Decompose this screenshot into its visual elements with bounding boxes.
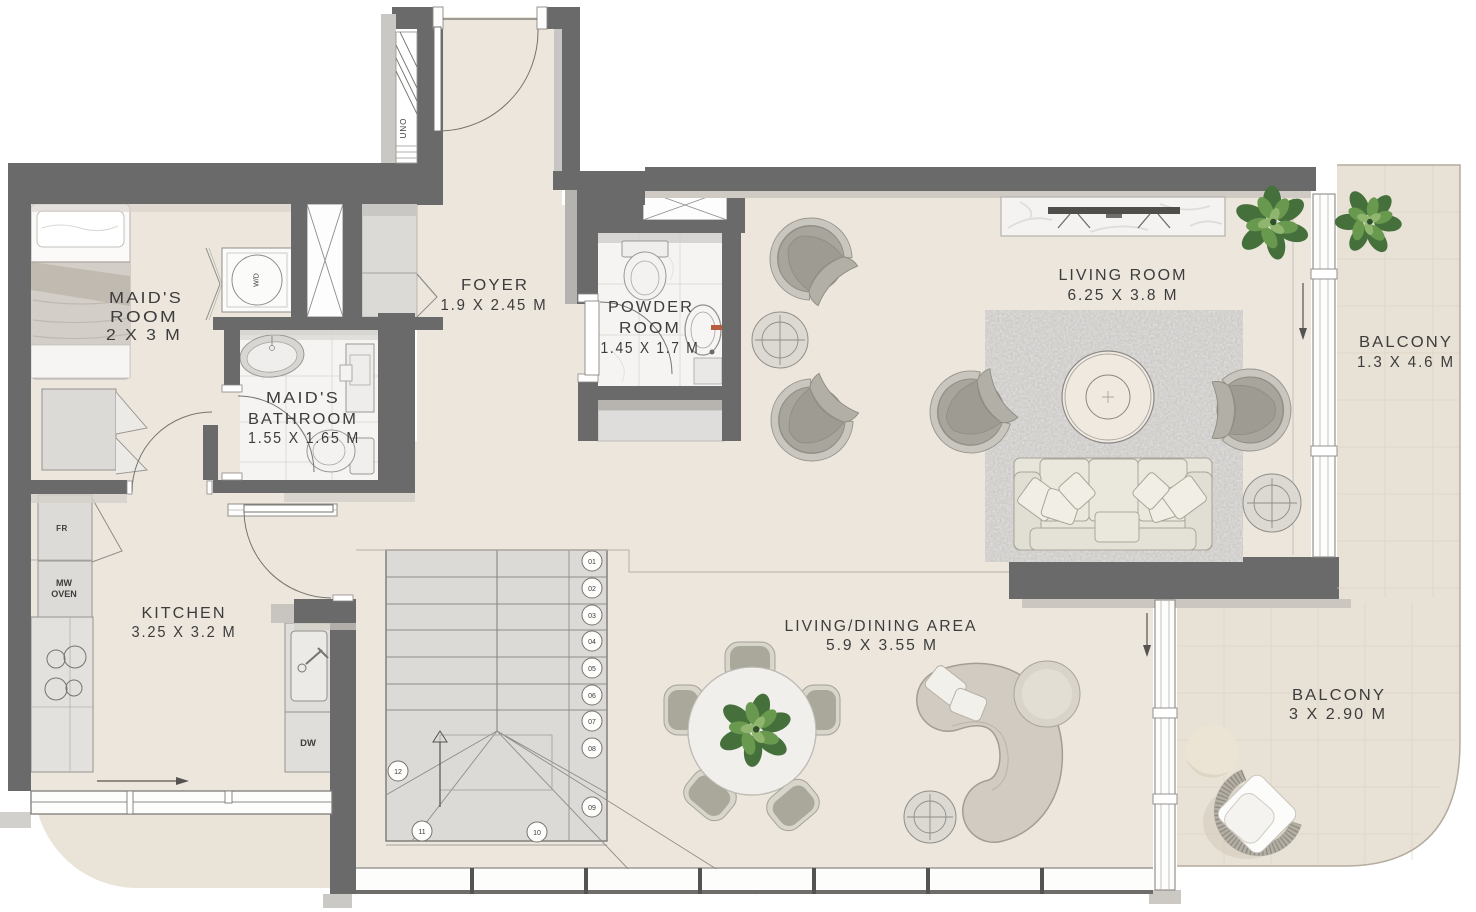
svg-text:06: 06 [588, 693, 596, 700]
svg-text:3 X 2.90 M: 3 X 2.90 M [1289, 706, 1387, 723]
svg-text:01: 01 [588, 559, 596, 566]
svg-text:1.9 X 2.45 M: 1.9 X 2.45 M [441, 297, 548, 314]
svg-text:ROOM: ROOM [110, 309, 178, 326]
svg-text:ROOM: ROOM [619, 320, 681, 337]
svg-text:MW: MW [56, 578, 72, 588]
svg-text:BALCONY: BALCONY [1359, 334, 1453, 351]
svg-text:07: 07 [588, 719, 596, 726]
svg-text:03: 03 [588, 613, 596, 620]
svg-text:W/D: W/D [254, 273, 261, 287]
svg-text:04: 04 [588, 639, 596, 646]
svg-text:1.55 X 1.65 M: 1.55 X 1.65 M [248, 430, 360, 447]
svg-text:FR: FR [56, 524, 68, 533]
svg-text:09: 09 [588, 805, 596, 812]
svg-text:1.3 X 4.6 M: 1.3 X 4.6 M [1357, 354, 1455, 371]
svg-text:BALCONY: BALCONY [1292, 687, 1386, 704]
svg-text:LIVING/DINING AREA: LIVING/DINING AREA [785, 618, 978, 635]
svg-text:FOYER: FOYER [461, 277, 529, 294]
svg-text:02: 02 [588, 586, 596, 593]
svg-text:3.25 X 3.2 M: 3.25 X 3.2 M [132, 624, 237, 641]
svg-text:12: 12 [394, 769, 402, 776]
svg-text:08: 08 [588, 746, 596, 753]
svg-text:2 X 3 M: 2 X 3 M [106, 327, 182, 344]
svg-text:05: 05 [588, 666, 596, 673]
svg-text:OVEN: OVEN [51, 589, 77, 599]
svg-text:5.9 X 3.55 M: 5.9 X 3.55 M [826, 637, 938, 654]
svg-text:POWDER: POWDER [608, 299, 694, 316]
svg-text:BATHROOM: BATHROOM [248, 411, 358, 428]
svg-text:MAID'S: MAID'S [109, 290, 183, 307]
svg-text:LIVING ROOM: LIVING ROOM [1059, 267, 1188, 284]
svg-text:1.45 X 1.7 M: 1.45 X 1.7 M [601, 340, 700, 357]
svg-text:KITCHEN: KITCHEN [142, 605, 227, 622]
svg-text:DW: DW [300, 738, 316, 749]
svg-text:6.25 X 3.8 M: 6.25 X 3.8 M [1068, 287, 1179, 304]
svg-text:11: 11 [418, 829, 425, 836]
svg-text:UNO: UNO [399, 118, 408, 139]
svg-text:10: 10 [533, 830, 541, 837]
svg-text:MAID'S: MAID'S [266, 390, 340, 407]
